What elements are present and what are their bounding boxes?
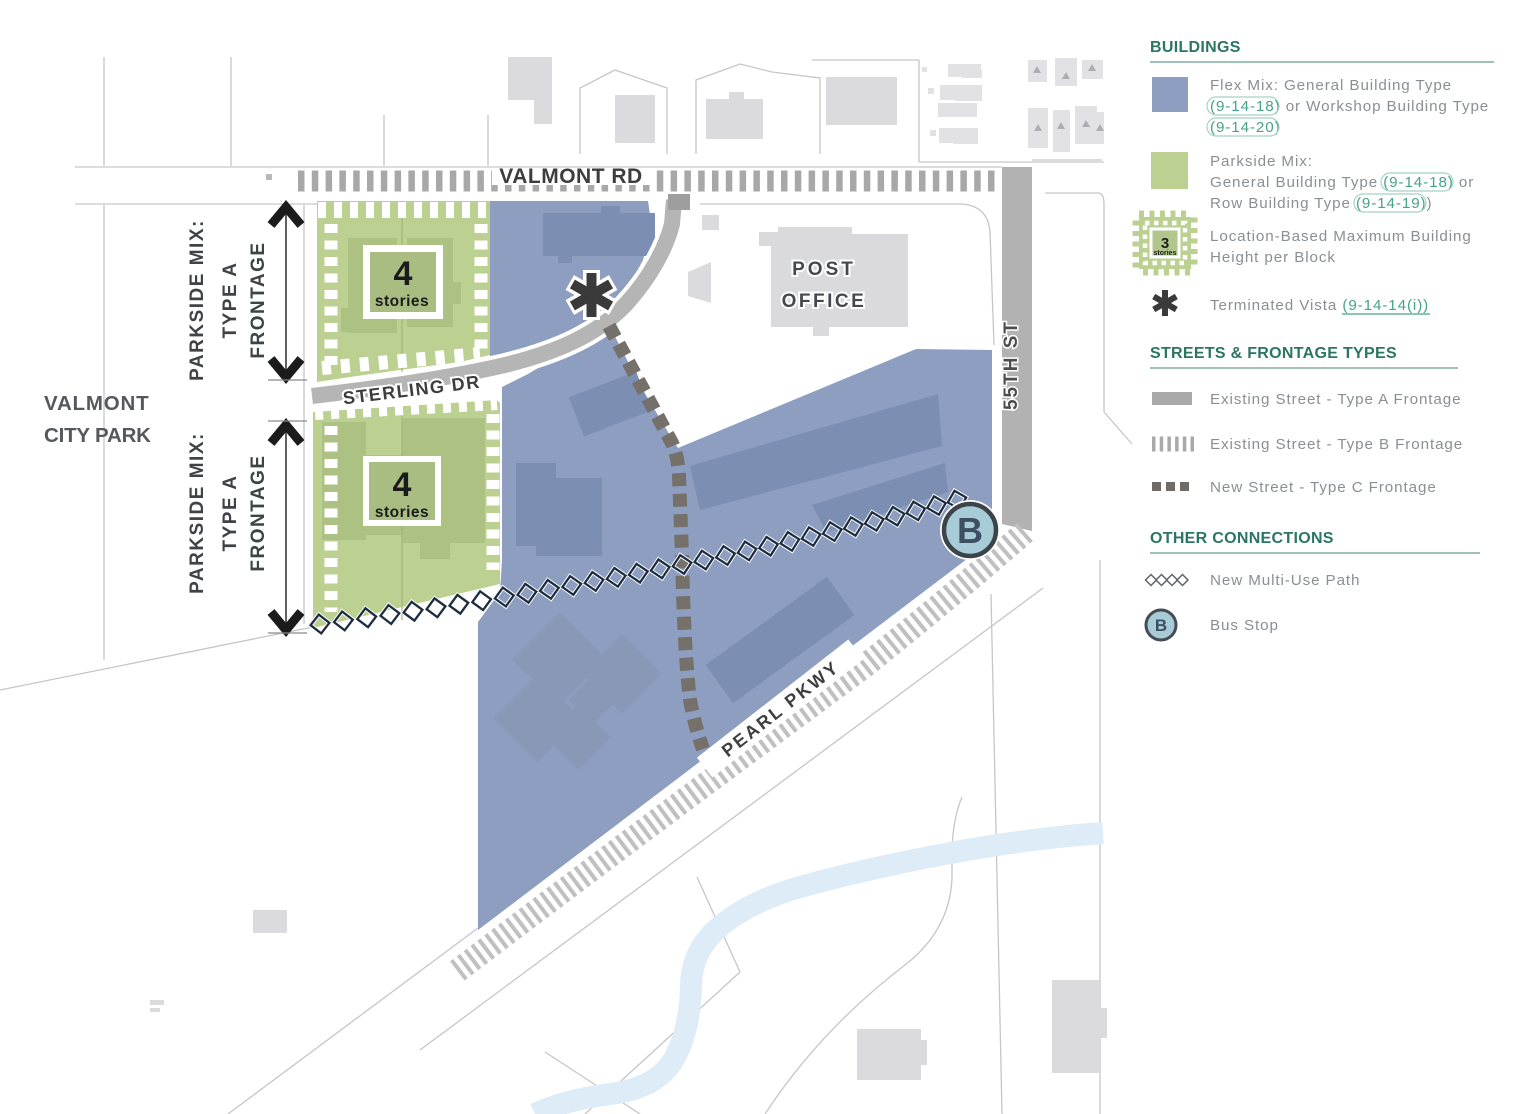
svg-text:B: B: [1155, 616, 1167, 635]
svg-text:TYPE A: TYPE A: [220, 475, 241, 552]
svg-text:POST: POST: [792, 259, 856, 280]
svg-text:Location-Based Maximum Buildin: Location-Based Maximum Building: [1210, 228, 1472, 245]
svg-text:4: 4: [393, 466, 412, 504]
svg-text:Parkside Mix:: Parkside Mix:: [1210, 153, 1313, 170]
svg-text:PARKSIDE MIX:: PARKSIDE MIX:: [187, 219, 208, 381]
svg-text:(9-14-20): (9-14-20): [1210, 119, 1281, 136]
svg-text:4: 4: [394, 255, 413, 293]
svg-text:Height per Block: Height per Block: [1210, 249, 1336, 266]
svg-text:VALMONT RD: VALMONT RD: [499, 165, 642, 188]
svg-text:New Multi-Use Path: New Multi-Use Path: [1210, 572, 1360, 589]
svg-text:Existing Street - Type A Front: Existing Street - Type A Frontage: [1210, 391, 1461, 408]
svg-text:VALMONT: VALMONT: [44, 392, 149, 415]
svg-text:Row Building Type (9-14-19)): Row Building Type (9-14-19)): [1210, 195, 1432, 212]
svg-text:stories: stories: [375, 504, 429, 521]
svg-text:stories: stories: [375, 293, 429, 310]
svg-text:(9-14-18) or Workshop Building: (9-14-18) or Workshop Building Type: [1210, 98, 1489, 115]
svg-text:OTHER CONNECTIONS: OTHER CONNECTIONS: [1150, 530, 1334, 547]
svg-text:Terminated Vista (9-14-14(i)): Terminated Vista (9-14-14(i)): [1210, 297, 1429, 314]
svg-text:TYPE A: TYPE A: [220, 262, 241, 339]
svg-text:55TH ST: 55TH ST: [1001, 320, 1022, 410]
svg-text:FRONTAGE: FRONTAGE: [248, 454, 269, 571]
svg-text:CITY PARK: CITY PARK: [44, 424, 151, 447]
svg-text:New Street - Type C Frontage: New Street - Type C Frontage: [1210, 479, 1437, 496]
svg-text:Bus Stop: Bus Stop: [1210, 617, 1279, 634]
svg-text:BUILDINGS: BUILDINGS: [1150, 39, 1241, 56]
svg-text:PARKSIDE MIX:: PARKSIDE MIX:: [187, 432, 208, 594]
svg-text:General Building Type (9-14-18: General Building Type (9-14-18) or: [1210, 174, 1474, 191]
svg-text:stories: stories: [1154, 250, 1177, 257]
svg-text:OFFICE: OFFICE: [782, 291, 867, 312]
svg-text:B: B: [957, 510, 983, 551]
svg-text:STREETS & FRONTAGE TYPES: STREETS & FRONTAGE TYPES: [1150, 345, 1397, 362]
svg-text:Flex Mix: General Building Typ: Flex Mix: General Building Type: [1210, 77, 1452, 94]
svg-text:Existing Street - Type B Front: Existing Street - Type B Frontage: [1210, 436, 1463, 453]
svg-text:FRONTAGE: FRONTAGE: [248, 241, 269, 358]
